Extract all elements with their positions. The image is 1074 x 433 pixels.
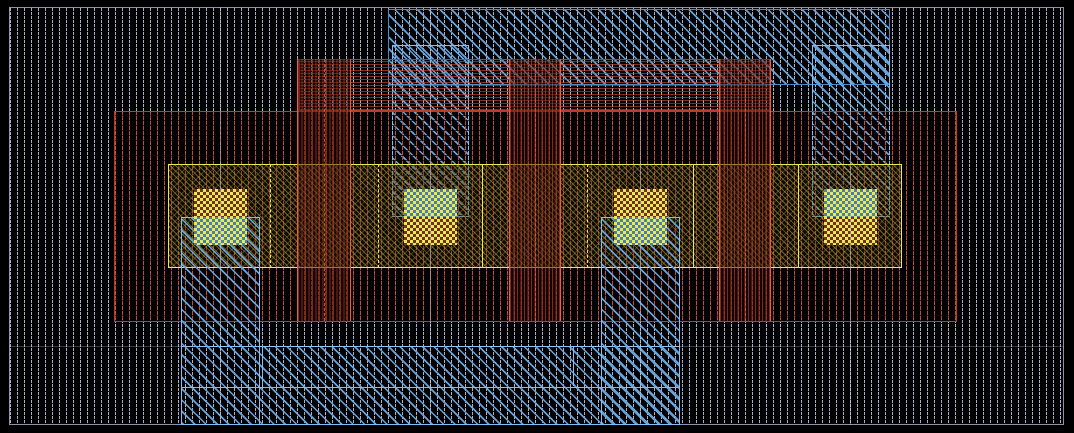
metal-seam-vertical-2[interactable] <box>573 346 574 386</box>
poly-gate-1[interactable] <box>297 59 351 321</box>
poly-gate-3[interactable] <box>719 59 771 321</box>
active-boundary-dashed-3[interactable] <box>587 164 588 268</box>
cell-reference-line-3[interactable] <box>640 7 641 425</box>
metal-seam-vertical-1[interactable] <box>262 346 263 387</box>
cell-reference-line-2[interactable] <box>430 7 431 425</box>
active-boundary-dashed-2[interactable] <box>378 164 379 268</box>
well-reference-line[interactable] <box>9 346 1064 347</box>
cell-reference-line-1[interactable] <box>220 7 221 425</box>
active-boundary-solid-1[interactable] <box>482 164 483 268</box>
active-boundary-solid-2[interactable] <box>693 164 694 268</box>
active-boundary-solid-3[interactable] <box>798 164 799 268</box>
layout-canvas[interactable] <box>0 0 1074 433</box>
poly-gate-2[interactable] <box>509 59 561 321</box>
active-boundary-dashed-1[interactable] <box>270 164 271 268</box>
cell-reference-line-4[interactable] <box>850 7 851 425</box>
